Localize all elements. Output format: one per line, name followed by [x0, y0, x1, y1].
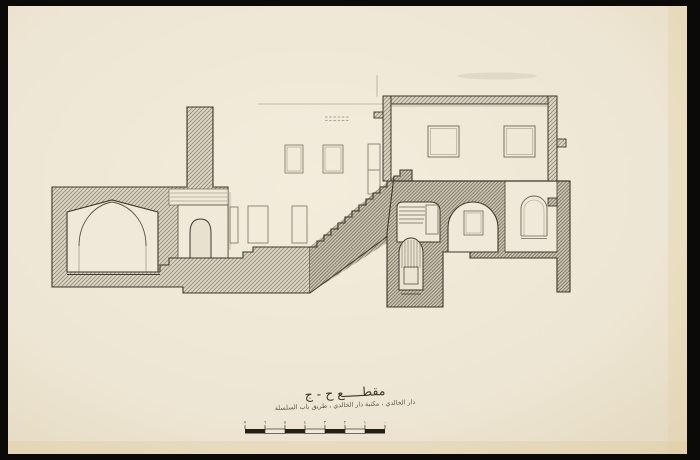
scale-tick-label: ٤	[304, 420, 306, 425]
paper-warm-right-edge	[668, 6, 687, 454]
upper-room-left-wall	[383, 96, 391, 181]
vaulted-room	[67, 200, 160, 275]
wall-flange-right	[557, 139, 566, 147]
paper-warm-bottom-edge	[8, 441, 687, 454]
basement-niche	[399, 238, 423, 294]
wall-flange-left	[374, 112, 383, 118]
scale-tick-label: ٠	[384, 420, 386, 425]
scale-tick-label: ٢	[344, 420, 346, 425]
upper-room-right-wall	[548, 96, 557, 181]
scale-tick-label: ٦	[264, 420, 266, 425]
ground-room	[505, 181, 557, 252]
entry-arch	[190, 219, 211, 258]
stair-flight-opening	[397, 202, 440, 242]
pencil-smudge	[457, 73, 537, 80]
scale-tick-label: ١	[364, 420, 366, 425]
scale-tick-label: ٥	[284, 420, 286, 425]
arched-opening	[448, 202, 498, 252]
wall-ledge	[548, 198, 557, 206]
archival-architectural-drawing: ٧ ٦ ٥ ٤ ٣ ٢ ١ ٠ مقطـــــع ح - ج دار الخا…	[0, 0, 700, 460]
roof-slab	[383, 96, 557, 104]
